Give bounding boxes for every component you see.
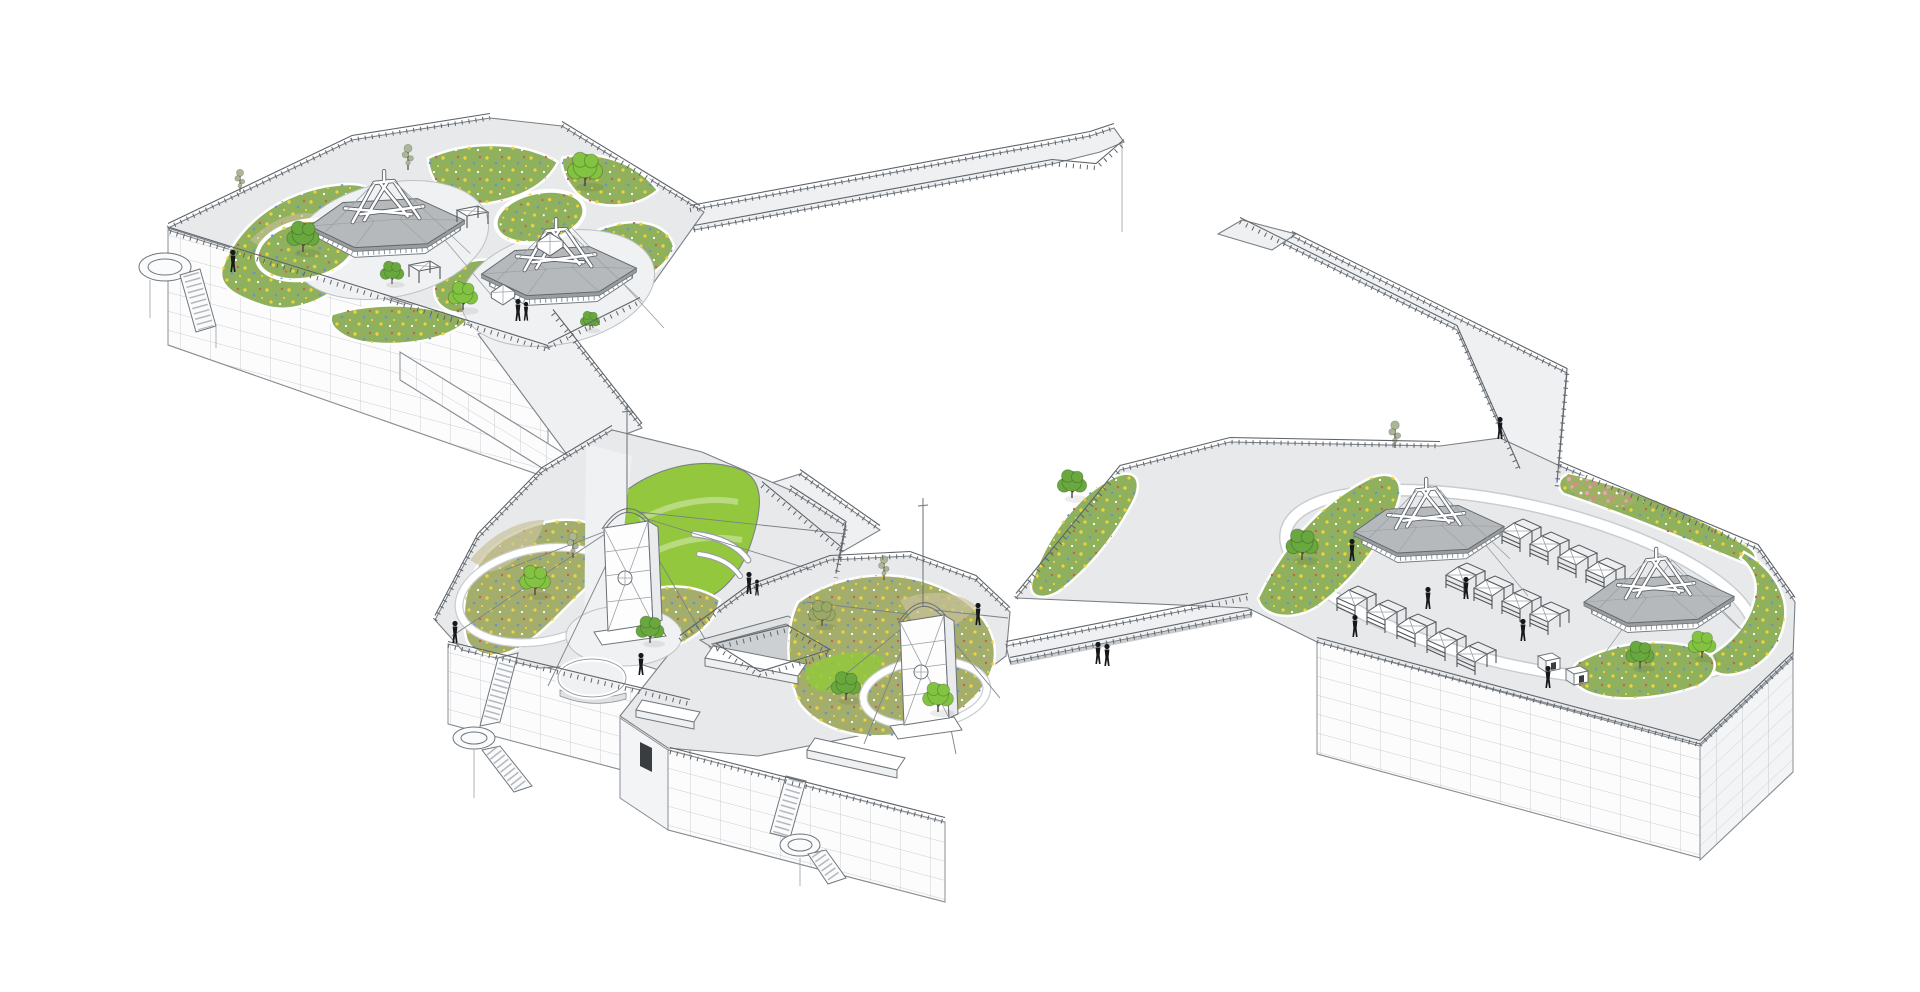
rooftop-park-drawing	[0, 0, 1920, 992]
axonometric-rendering	[0, 0, 1920, 992]
kiosk	[1566, 666, 1588, 685]
